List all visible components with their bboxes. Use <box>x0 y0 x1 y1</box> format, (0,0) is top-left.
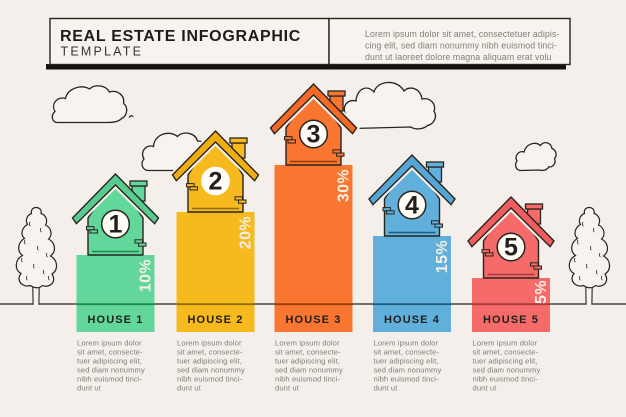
svg-text:REAL ESTATE INFOGRAPHIC: REAL ESTATE INFOGRAPHIC <box>60 28 301 45</box>
svg-text:HOUSE 1: HOUSE 1 <box>88 314 144 326</box>
svg-text:HOUSE 3: HOUSE 3 <box>286 314 342 326</box>
svg-text:4: 4 <box>405 192 419 220</box>
svg-text:3: 3 <box>307 121 321 149</box>
svg-text:30%: 30% <box>336 169 353 202</box>
svg-text:TEMPLATE: TEMPLATE <box>61 44 144 58</box>
svg-text:HOUSE 2: HOUSE 2 <box>188 314 244 326</box>
svg-text:10%: 10% <box>138 259 155 292</box>
svg-text:Lorem ipsum dolor sit amet, co: Lorem ipsum dolor sit amet, consectetuer… <box>365 29 560 62</box>
svg-text:5: 5 <box>504 234 518 262</box>
svg-text:HOUSE 4: HOUSE 4 <box>384 314 440 326</box>
svg-text:5%: 5% <box>533 280 550 304</box>
svg-text:HOUSE 5: HOUSE 5 <box>483 314 539 326</box>
svg-text:2: 2 <box>209 168 223 196</box>
svg-text:15%: 15% <box>434 240 451 273</box>
svg-text:1: 1 <box>109 211 123 239</box>
svg-text:20%: 20% <box>238 216 255 249</box>
